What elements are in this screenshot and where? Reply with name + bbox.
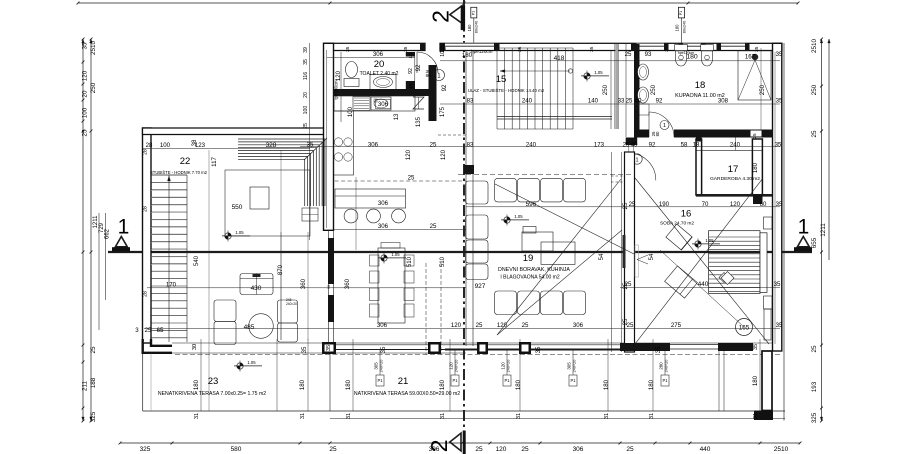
- svg-text:1: 1: [437, 73, 441, 80]
- svg-text:70: 70: [702, 201, 709, 208]
- svg-text:2510: 2510: [90, 41, 97, 55]
- svg-text:325: 325: [140, 446, 151, 453]
- svg-text:83: 83: [467, 98, 474, 105]
- svg-text:hpe120cm: hpe120cm: [471, 49, 493, 54]
- svg-text:275: 275: [671, 322, 682, 329]
- svg-text:240=20: 240=20: [286, 302, 297, 306]
- svg-text:510: 510: [406, 256, 413, 267]
- svg-text:STUBIŠTE - HODNIK 7.70 m2: STUBIŠTE - HODNIK 7.70 m2: [150, 170, 208, 175]
- svg-text:180: 180: [752, 375, 759, 386]
- svg-text:35: 35: [776, 98, 783, 105]
- svg-text:35: 35: [655, 346, 662, 353]
- svg-text:92: 92: [441, 84, 448, 91]
- svg-text:250: 250: [759, 84, 766, 95]
- svg-text:1.05: 1.05: [705, 238, 714, 243]
- svg-text:P1: P1: [679, 11, 683, 15]
- svg-text:180: 180: [648, 379, 655, 390]
- svg-text:16: 16: [681, 209, 692, 220]
- svg-text:123: 123: [195, 142, 206, 149]
- svg-text:15: 15: [496, 74, 507, 85]
- svg-text:65: 65: [157, 327, 164, 334]
- svg-text:440: 440: [700, 446, 711, 453]
- svg-text:25: 25: [622, 318, 629, 325]
- svg-text:hpe120cm: hpe120cm: [678, 51, 695, 55]
- svg-text:120: 120: [82, 70, 89, 81]
- svg-text:1.05: 1.05: [594, 70, 603, 75]
- svg-text:35: 35: [303, 59, 309, 65]
- svg-text:60: 60: [760, 201, 767, 208]
- svg-text:120: 120: [730, 201, 741, 208]
- svg-text:305: 305: [567, 362, 572, 370]
- svg-text:1.05: 1.05: [235, 230, 244, 235]
- svg-text:193: 193: [811, 381, 818, 392]
- svg-text:240=20: 240=20: [665, 360, 669, 373]
- svg-text:180: 180: [193, 379, 200, 390]
- svg-text:54: 54: [648, 253, 655, 260]
- svg-text:25: 25: [811, 130, 818, 137]
- svg-text:31: 31: [649, 413, 655, 419]
- svg-text:80: 80: [655, 131, 660, 136]
- svg-text:25: 25: [626, 446, 634, 453]
- svg-text:83: 83: [467, 142, 474, 149]
- svg-text:440: 440: [698, 281, 709, 288]
- svg-text:240: 240: [730, 142, 741, 149]
- svg-text:1211: 1211: [820, 223, 827, 237]
- svg-text:35: 35: [589, 46, 595, 52]
- svg-text:325: 325: [90, 411, 97, 422]
- svg-text:28: 28: [143, 149, 149, 155]
- svg-text:40: 40: [635, 98, 642, 105]
- svg-text:30: 30: [192, 344, 198, 350]
- svg-text:18: 18: [693, 142, 700, 149]
- svg-text:120: 120: [335, 70, 342, 81]
- svg-text:165: 165: [739, 325, 750, 332]
- svg-text:35: 35: [776, 201, 783, 208]
- svg-text:250: 250: [811, 84, 818, 95]
- svg-text:25: 25: [752, 133, 757, 139]
- svg-text:1.05: 1.05: [247, 360, 256, 365]
- svg-text:120: 120: [449, 362, 454, 370]
- svg-text:360: 360: [300, 278, 307, 289]
- svg-text:35: 35: [754, 46, 760, 52]
- svg-text:80x240: 80x240: [474, 21, 478, 33]
- svg-text:25: 25: [629, 201, 636, 208]
- svg-text:TOALET 2.40 m2: TOALET 2.40 m2: [360, 71, 399, 77]
- svg-text:240: 240: [526, 142, 537, 149]
- svg-text:17: 17: [728, 164, 739, 175]
- svg-text:100: 100: [82, 107, 89, 118]
- svg-text:180: 180: [675, 24, 680, 32]
- svg-text:GARDEROBA 4.30 m2: GARDEROBA 4.30 m2: [710, 176, 760, 182]
- svg-text:306: 306: [368, 142, 379, 149]
- svg-text:92: 92: [415, 64, 422, 71]
- svg-text:35: 35: [774, 281, 781, 288]
- svg-text:25: 25: [626, 98, 633, 105]
- svg-text:P1: P1: [472, 11, 476, 15]
- svg-text:tpn 100cm: tpn 100cm: [334, 80, 339, 100]
- svg-text:100: 100: [160, 142, 171, 149]
- svg-text:35: 35: [301, 346, 308, 353]
- svg-text:250: 250: [602, 84, 609, 95]
- svg-text:28: 28: [146, 142, 153, 149]
- svg-text:19: 19: [523, 253, 534, 264]
- svg-text:16: 16: [408, 83, 413, 89]
- svg-text:25: 25: [82, 129, 89, 136]
- svg-text:28: 28: [143, 291, 149, 297]
- svg-text:173: 173: [594, 142, 605, 149]
- svg-text:117: 117: [211, 157, 218, 167]
- svg-text:170: 170: [166, 282, 177, 289]
- svg-text:540: 540: [193, 255, 200, 266]
- svg-text:25: 25: [90, 346, 97, 353]
- svg-text:25: 25: [522, 322, 529, 329]
- svg-text:2: 2: [428, 10, 454, 23]
- svg-text:100: 100: [303, 106, 309, 115]
- svg-text:31: 31: [346, 413, 352, 419]
- svg-text:P1: P1: [505, 378, 511, 383]
- svg-text:NENATKRIVENA TERASA 7.00x0.25=: NENATKRIVENA TERASA 7.00x0.25= 1.75 m2: [158, 391, 266, 397]
- svg-text:58: 58: [681, 142, 688, 149]
- svg-text:90: 90: [327, 285, 331, 289]
- svg-text:35: 35: [776, 322, 783, 329]
- svg-text:100: 100: [347, 106, 354, 117]
- svg-text:ULAZ - STUBIŠTE - HODNIK 14.40: ULAZ - STUBIŠTE - HODNIK 14.40 m2: [468, 88, 545, 93]
- svg-text:35: 35: [307, 142, 314, 149]
- svg-text:180: 180: [515, 379, 522, 390]
- svg-text:306: 306: [573, 322, 584, 329]
- svg-text:120: 120: [405, 149, 412, 160]
- svg-text:31: 31: [753, 413, 759, 419]
- svg-text:1.05: 1.05: [391, 252, 400, 257]
- svg-text:580: 580: [231, 446, 242, 453]
- svg-text:325: 325: [811, 412, 818, 423]
- svg-text:25: 25: [430, 223, 437, 230]
- svg-text:18: 18: [695, 80, 706, 91]
- svg-text:20: 20: [374, 59, 385, 70]
- svg-text:120: 120: [496, 446, 507, 453]
- svg-text:35: 35: [776, 51, 783, 58]
- svg-text:250: 250: [650, 84, 657, 95]
- svg-text:103: 103: [439, 42, 446, 53]
- svg-text:140: 140: [588, 98, 599, 105]
- svg-text:93: 93: [645, 51, 652, 58]
- svg-text:2: 2: [426, 439, 452, 452]
- svg-text:25: 25: [811, 345, 818, 352]
- svg-text:240: 240: [522, 98, 533, 105]
- svg-text:25: 25: [303, 123, 309, 129]
- svg-text:80: 80: [426, 73, 431, 78]
- svg-text:418: 418: [554, 55, 565, 62]
- svg-text:P1: P1: [378, 378, 384, 383]
- svg-text:2510: 2510: [811, 39, 818, 53]
- svg-text:13: 13: [393, 113, 400, 120]
- svg-text:1: 1: [118, 216, 130, 239]
- svg-text:P1: P1: [453, 378, 459, 383]
- svg-text:25: 25: [408, 175, 415, 182]
- svg-text:40: 40: [631, 142, 638, 149]
- svg-text:120: 120: [440, 149, 447, 160]
- svg-text:31: 31: [516, 413, 522, 419]
- svg-text:31: 31: [194, 413, 200, 419]
- svg-text:1.05: 1.05: [514, 214, 523, 219]
- svg-text:120: 120: [451, 322, 462, 329]
- svg-text:DNEVNI BORAVAK, KUHINJA: DNEVNI BORAVAK, KUHINJA: [498, 267, 570, 273]
- svg-text:54: 54: [598, 253, 605, 260]
- svg-text:P1: P1: [571, 378, 577, 383]
- svg-text:25: 25: [329, 446, 337, 453]
- svg-text:NATKRIVENA TERASA 59.00X0.50=2: NATKRIVENA TERASA 59.00X0.50=29.00 m2: [354, 391, 460, 397]
- svg-text:280: 280: [659, 362, 664, 370]
- svg-text:135: 135: [415, 116, 422, 127]
- svg-text:870: 870: [277, 264, 284, 275]
- svg-text:306: 306: [377, 322, 388, 329]
- svg-text:3: 3: [135, 327, 139, 334]
- svg-text:2510: 2510: [774, 446, 789, 453]
- svg-text:655: 655: [811, 237, 818, 248]
- svg-text:306: 306: [378, 101, 389, 108]
- svg-text:211: 211: [82, 380, 89, 390]
- svg-text:25: 25: [430, 142, 437, 149]
- svg-text:1: 1: [798, 216, 810, 239]
- svg-text:430: 430: [251, 285, 262, 292]
- svg-text:306: 306: [373, 51, 384, 58]
- svg-text:180: 180: [345, 379, 352, 390]
- svg-text:23: 23: [208, 376, 219, 387]
- svg-text:306: 306: [573, 446, 584, 453]
- svg-text:28: 28: [143, 206, 149, 212]
- svg-text:328: 328: [266, 142, 277, 149]
- svg-text:240=20: 240=20: [380, 360, 384, 373]
- svg-text:35: 35: [82, 42, 89, 49]
- svg-text:25: 25: [475, 446, 483, 453]
- svg-text:80x240: 80x240: [682, 21, 686, 33]
- svg-text:25: 25: [145, 327, 152, 334]
- svg-text:180: 180: [467, 24, 472, 32]
- svg-text:25: 25: [625, 51, 632, 58]
- svg-text:I BLAGOVAONA 54.00 m2: I BLAGOVAONA 54.00 m2: [500, 275, 559, 281]
- svg-text:31: 31: [440, 413, 446, 419]
- svg-text:20: 20: [303, 92, 309, 98]
- svg-text:35: 35: [535, 346, 542, 353]
- svg-text:306: 306: [378, 200, 389, 207]
- svg-text:31: 31: [300, 413, 306, 419]
- svg-text:550: 550: [232, 204, 243, 211]
- svg-text:92: 92: [656, 98, 663, 105]
- svg-text:485: 485: [244, 324, 255, 331]
- svg-text:240=20: 240=20: [455, 360, 459, 373]
- svg-text:360: 360: [344, 278, 351, 289]
- svg-text:180: 180: [299, 379, 306, 390]
- svg-text:240=20: 240=20: [507, 360, 511, 373]
- svg-text:25: 25: [476, 322, 483, 329]
- svg-text:P1: P1: [663, 378, 669, 383]
- svg-text:306: 306: [378, 223, 389, 230]
- svg-text:22: 22: [180, 156, 191, 167]
- svg-text:35: 35: [753, 344, 759, 350]
- svg-text:25: 25: [623, 142, 630, 149]
- svg-text:20: 20: [82, 90, 89, 97]
- svg-text:662: 662: [105, 228, 111, 239]
- svg-text:305: 305: [374, 362, 379, 370]
- svg-text:31: 31: [604, 413, 610, 419]
- svg-text:35: 35: [380, 346, 387, 353]
- svg-text:180: 180: [752, 162, 759, 173]
- svg-text:KUPAONA 11.00 m2: KUPAONA 11.00 m2: [675, 93, 725, 99]
- svg-text:116: 116: [303, 72, 309, 80]
- svg-text:175: 175: [439, 106, 446, 117]
- svg-text:188: 188: [90, 377, 97, 388]
- svg-text:180: 180: [439, 379, 446, 390]
- svg-text:SOBA 24.70 m2: SOBA 24.70 m2: [660, 221, 694, 227]
- svg-text:510: 510: [439, 256, 446, 267]
- svg-text:180: 180: [603, 379, 610, 390]
- svg-text:240=20: 240=20: [573, 360, 577, 373]
- svg-text:25: 25: [622, 202, 629, 209]
- svg-text:39: 39: [303, 47, 309, 53]
- svg-text:120: 120: [497, 322, 508, 329]
- svg-text:1: 1: [663, 123, 666, 129]
- svg-text:250: 250: [90, 82, 97, 93]
- svg-text:35: 35: [775, 142, 782, 149]
- svg-text:1: 1: [635, 158, 638, 164]
- svg-text:35: 35: [345, 46, 351, 52]
- svg-text:120: 120: [501, 362, 506, 370]
- svg-text:190: 190: [659, 201, 670, 208]
- svg-text:92: 92: [649, 142, 656, 149]
- svg-text:927: 927: [475, 283, 486, 290]
- svg-text:21: 21: [398, 376, 409, 387]
- svg-text:92: 92: [408, 68, 414, 74]
- svg-text:25: 25: [622, 282, 629, 289]
- svg-text:35: 35: [403, 46, 409, 52]
- svg-text:167: 167: [745, 54, 756, 61]
- svg-text:25: 25: [521, 446, 529, 453]
- svg-text:33: 33: [618, 98, 625, 105]
- svg-text:35: 35: [326, 345, 332, 351]
